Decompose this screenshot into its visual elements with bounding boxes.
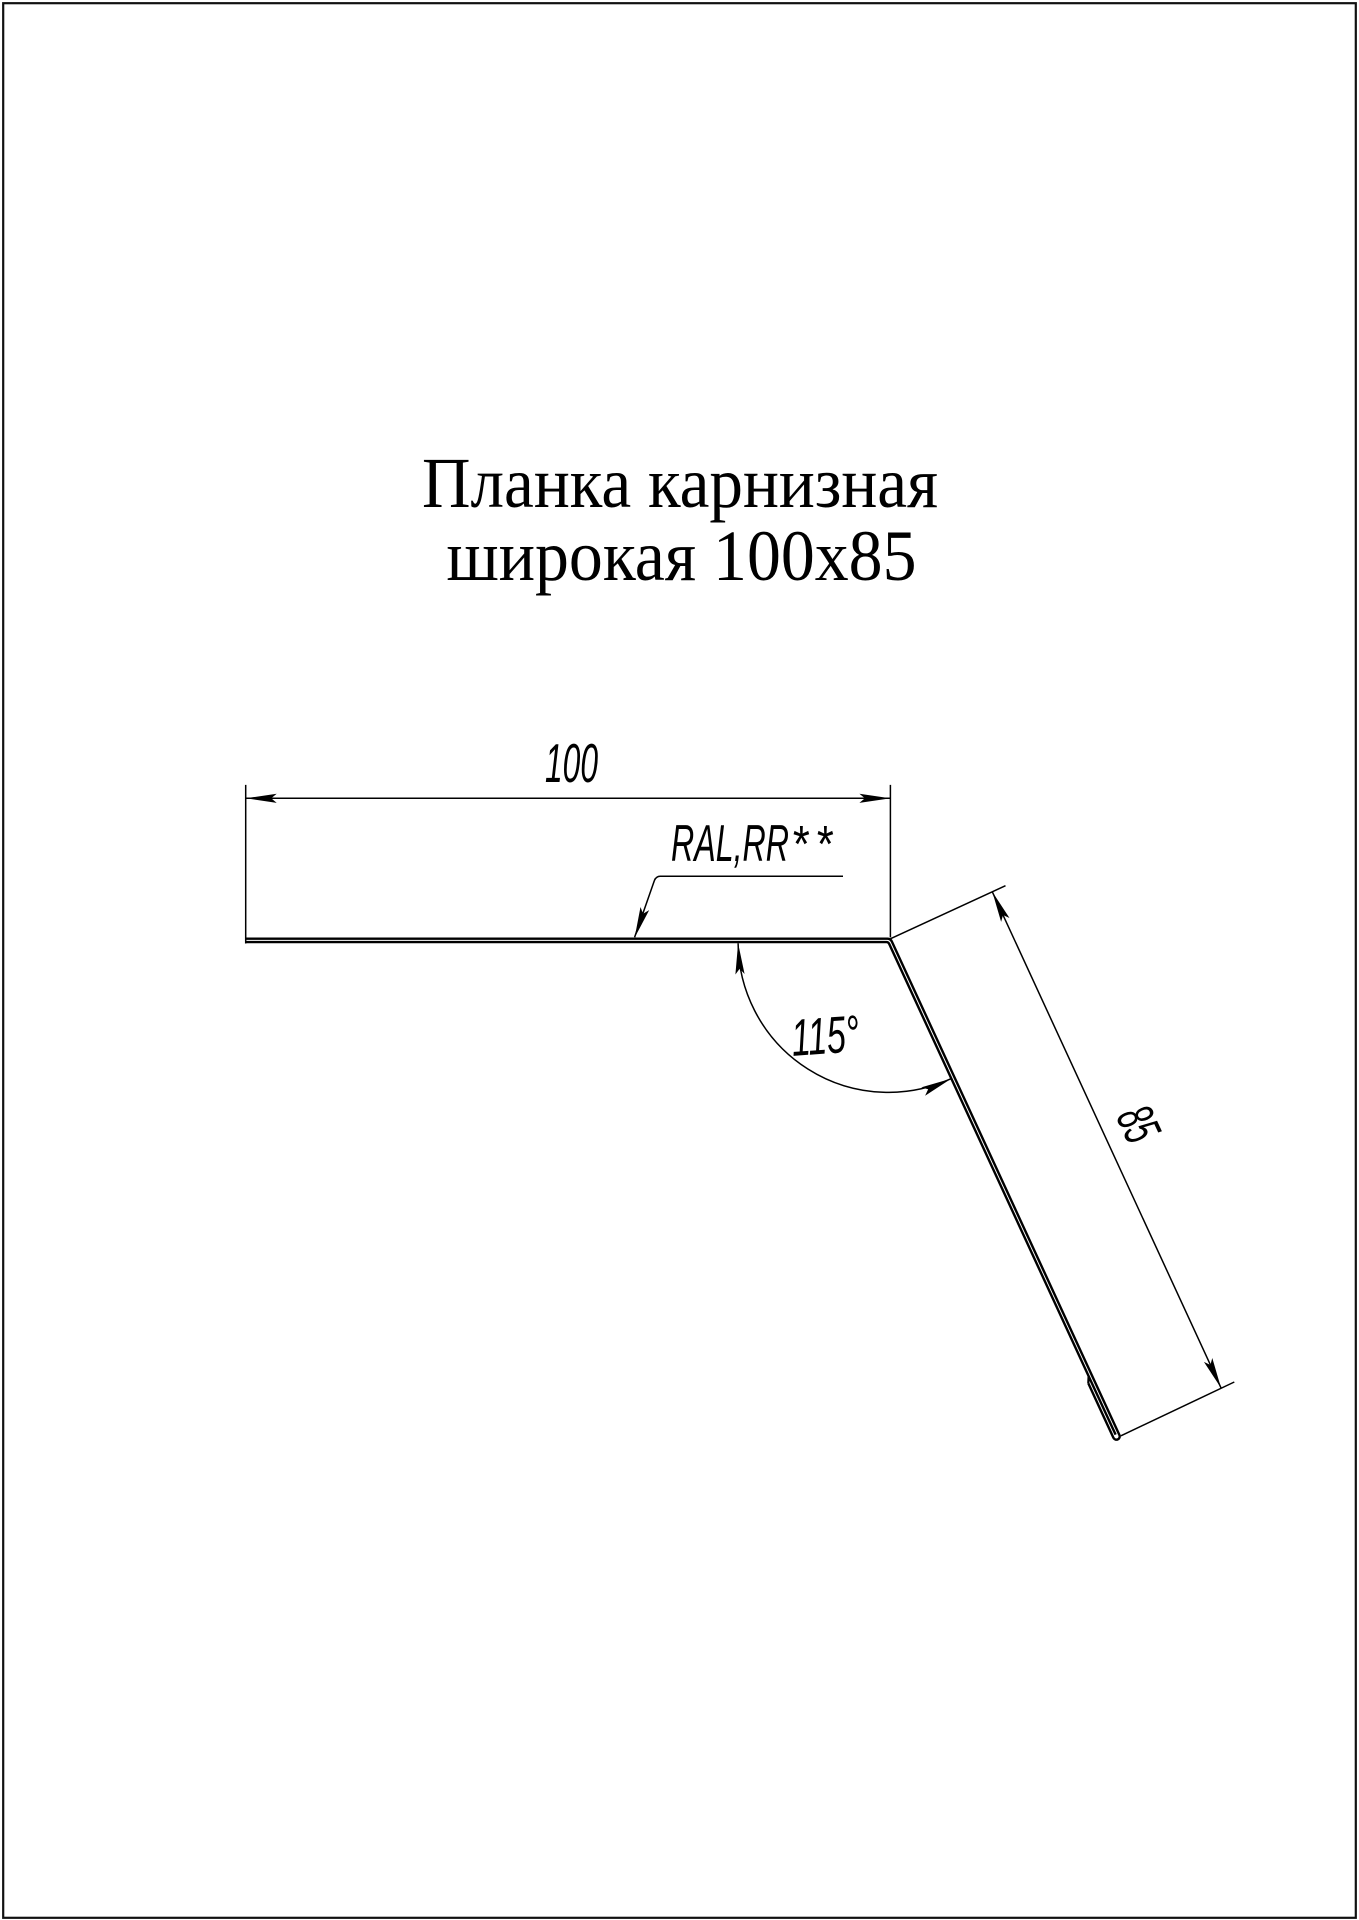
svg-text:широкая 100х85: широкая 100х85 [447, 516, 917, 596]
svg-text:RAL,RR: RAL,RR [671, 815, 789, 873]
svg-text:115°: 115° [789, 1005, 861, 1068]
svg-text:*: * [791, 816, 809, 874]
svg-text:*: * [815, 816, 833, 874]
svg-text:85: 85 [1105, 1097, 1172, 1152]
svg-text:Планка карнизная: Планка карнизная [422, 443, 938, 523]
svg-text:100: 100 [545, 732, 598, 794]
